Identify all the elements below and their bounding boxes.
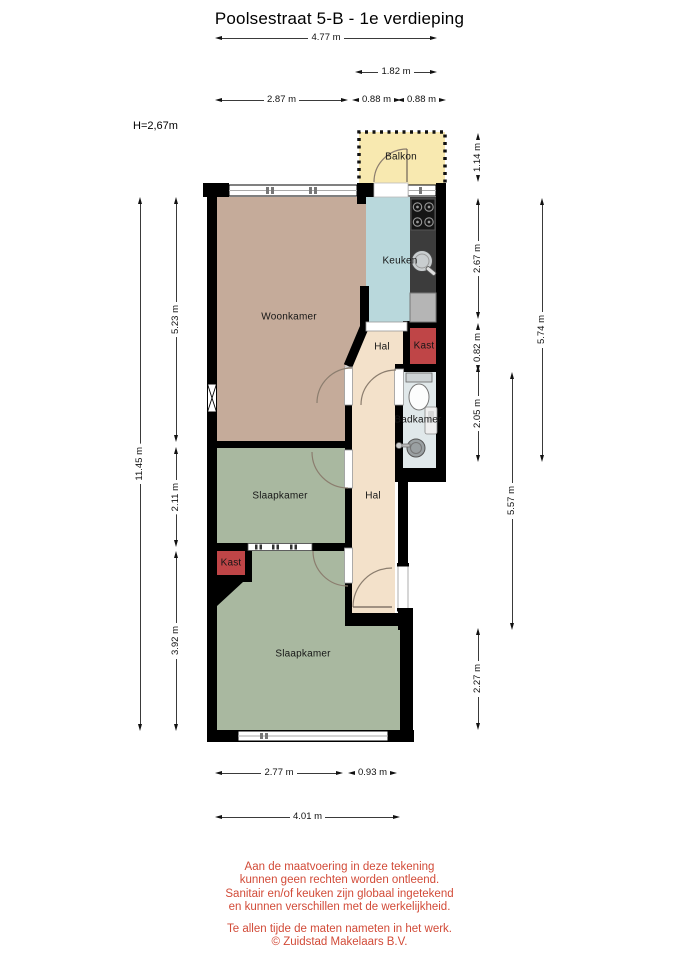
entree-door-opening [398,566,408,609]
window-slaapkamer-onder [238,731,388,741]
dim-breedte-balkon: 1.82 m [355,65,437,79]
dim-diepte-balkon: 1.14 m [471,133,485,182]
window-woonkamer [229,185,357,196]
toilet-tank [406,373,432,382]
dim-breedte-hal-keuken: 0.88 m [352,93,393,107]
copyright-line: © Zuidstad Makelaars B.V. [0,936,679,949]
window-binnenwand-slaapkamers [248,544,312,551]
label-balkon: Balkon [385,152,417,163]
dim-diepte-slaapkamer-onder: 3.92 m [169,551,183,731]
dim-diepte-woonkamer: 5.23 m [169,197,183,442]
toilet-bowl [409,384,429,410]
dim-breedte-totaal: 4.77 m [215,31,437,45]
disclaimer-line: kunnen geen rechten worden ontleend. [0,874,679,887]
disclaimer-block: Aan de maatvoering in deze tekening kunn… [0,861,679,950]
dim-diepte-hal: 5.57 m [505,372,519,630]
label-slaapkamer-midden: Slaapkamer [252,491,307,502]
badkamer-door-opening [395,369,404,405]
dim-breedte-keuken-rechts: 0.88 m [397,93,437,107]
label-slaapkamer-onder: Slaapkamer [275,649,330,660]
floorplan-page: Poolsestraat 5-B - 1e verdieping H=2,67m [0,0,679,960]
dim-breedte-slaapkamer-onder: 2.77 m [215,766,343,780]
label-hal-boven: Hal [374,342,390,353]
disclaimer-line: Aan de maatvoering in deze tekening [0,861,679,874]
dim-diepte-badkamer: 2.05 m [471,365,485,462]
dim-breedte-woonkamer: 2.87 m [215,93,348,107]
slaapkamer-midden-door-opening [345,450,353,488]
woonkamer-door-opening [345,367,353,405]
balkon-door-opening [374,183,408,197]
dim-diepte-kast: 0.82 m [471,323,485,361]
dim-diepte-slaapkamer-midden: 2.11 m [169,447,183,547]
dim-diepte-keuken: 2.67 m [471,198,485,319]
dim-breedte-hal-onder: 0.93 m [348,766,391,780]
dim-breedte-onder-totaal: 4.01 m [215,810,400,824]
label-hal-onder: Hal [365,491,381,502]
dim-diepte-rechts-boven: 5.74 m [535,198,549,462]
disclaimer-line: Sanitair en/of keuken zijn globaal inget… [0,888,679,901]
footer-line: Te allen tijde de maten nameten in het w… [0,923,679,936]
label-badkamer: Badkamer [394,415,441,426]
label-kast-boven: Kast [414,341,435,352]
label-woonkamer: Woonkamer [261,312,317,323]
slaapkamer-onder-door-opening [345,548,353,583]
label-keuken: Keuken [382,256,417,267]
dim-diepte-rechts-onder: 2.27 m [471,628,485,730]
kitchen-cabinet [410,293,436,322]
keuken-hal-opening [366,322,407,331]
wall-niche [208,384,217,412]
disclaimer-line: en kunnen verschillen met de werkelijkhe… [0,901,679,914]
label-kast-onder: Kast [221,558,242,569]
bathroom-sink [407,439,425,457]
window-keuken [408,185,436,196]
dim-hoogte-totaal: 11.45 m [133,197,147,731]
